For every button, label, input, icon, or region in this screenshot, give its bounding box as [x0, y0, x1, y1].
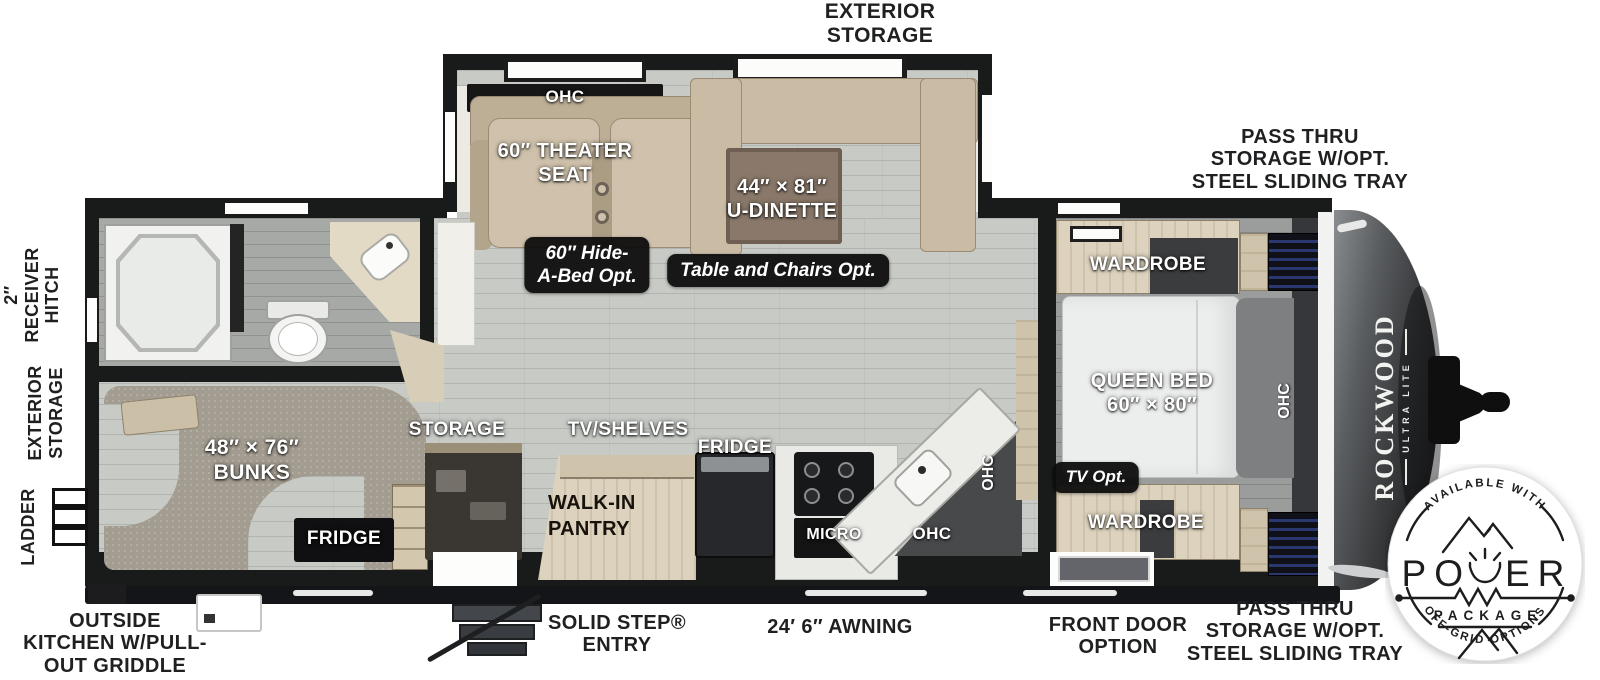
- badge-power-left: PO: [1402, 553, 1471, 594]
- bath-faucet: [386, 242, 393, 249]
- chassis-rail: [85, 586, 1340, 604]
- linen-column: [437, 222, 475, 346]
- wall-bath-divider: [85, 366, 434, 382]
- label-wardrobe-bottom: WARDROBE: [1088, 512, 1204, 534]
- kitchen-faucet: [918, 466, 926, 474]
- label-bunk-fridge: FRIDGE: [307, 528, 381, 550]
- rail-glint-1: [293, 590, 373, 596]
- label-ohc-bed: OHC: [1276, 378, 1294, 424]
- label-receiver-hitch-text: 2″ RECEIVER HITCH: [1, 247, 64, 342]
- ladder-rung-2: [55, 524, 85, 530]
- dinette-bench-right: [920, 78, 976, 252]
- wall-top-front: [978, 198, 1332, 218]
- burner-4: [838, 488, 854, 504]
- label-walk-in-pantry: WALK-IN PANTRY: [548, 490, 636, 542]
- burner-1: [804, 462, 820, 478]
- label-front-door-option: FRONT DOOR OPTION: [1049, 614, 1187, 659]
- front-cabinet-bottom: [1240, 508, 1268, 572]
- bath-partition: [230, 224, 244, 332]
- toilet-seat: [278, 322, 318, 356]
- label-ladder-text: LADDER: [18, 488, 39, 565]
- cupholder-2: [595, 210, 609, 224]
- rail-glint-3: [1023, 590, 1117, 596]
- label-ladder: LADDER: [17, 480, 39, 574]
- label-storage: STORAGE: [409, 419, 505, 441]
- label-hide-a-bed-option: 60″ Hide- A-Bed Opt.: [524, 237, 649, 293]
- label-tv-option: TV Opt.: [1053, 462, 1139, 493]
- storage-item-1: [436, 470, 466, 492]
- label-u-dinette: 44″ × 81″ U-DINETTE: [727, 176, 837, 223]
- brand-rule-right: [1405, 329, 1407, 355]
- label-awning: 24′ 6″ AWNING: [767, 616, 913, 638]
- window-slide-right: [982, 95, 992, 182]
- hitch-handle: [1480, 392, 1510, 412]
- label-pass-thru-bottom: PASS THRU STORAGE W/OPT. STEEL SLIDING T…: [1187, 598, 1403, 665]
- brand-subtitle-text: ULTRA LITE: [1401, 361, 1411, 453]
- label-ohc-sink: OHC: [980, 450, 998, 496]
- window-bathroom: [225, 203, 308, 214]
- roof-vent: [1070, 226, 1122, 242]
- label-theater-seat: 60″ THEATER SEAT: [498, 140, 633, 187]
- window-slide-left: [445, 112, 455, 182]
- front-cabinet-top: [1240, 233, 1268, 291]
- label-pass-thru-top: PASS THRU STORAGE W/OPT. STEEL SLIDING T…: [1192, 126, 1408, 193]
- power-package-badge: AVAILABLE WITH PO ER PACKAGE OFF-GRID OP…: [1385, 464, 1585, 664]
- label-outside-kitchen: OUTSIDE KITCHEN W/PULL- OUT GRIDDLE: [23, 610, 207, 677]
- ladder-rung-1: [55, 504, 85, 510]
- label-exterior-storage-left-text: EXTERIOR STORAGE: [25, 365, 67, 460]
- label-exterior-storage-left: EXTERIOR STORAGE: [24, 356, 68, 470]
- entry-door-opening: [433, 552, 517, 586]
- rv-floorplan: ROCKWOOD ULTRA LITE OHC 60″ THEATER SEAT…: [0, 0, 1600, 680]
- rail-glint-2: [805, 590, 927, 596]
- label-queen-bed: QUEEN BED 60″ × 80″: [1091, 370, 1214, 417]
- pantry-shelf-band: [560, 455, 694, 479]
- label-kitchen-fridge: FRIDGE: [698, 437, 772, 459]
- wall-bedroom: [1038, 198, 1056, 556]
- tall-cabinet: [1016, 320, 1038, 500]
- label-ohc-slide: OHC: [546, 87, 585, 107]
- label-receiver-hitch: 2″ RECEIVER HITCH: [1, 235, 63, 355]
- label-table-chairs-option: Table and Chairs Opt.: [667, 254, 889, 287]
- rear-stabilizer: [88, 584, 126, 604]
- label-exterior-storage-top: EXTERIOR STORAGE: [825, 0, 936, 47]
- label-bunks: 48″ × 76″ BUNKS: [205, 436, 299, 486]
- label-solid-step-entry: SOLID STEP® ENTRY: [548, 612, 686, 657]
- bunk-steps: [392, 484, 428, 570]
- brand-subtitle: ULTRA LITE: [1401, 329, 1411, 485]
- shower-pan-inner: [120, 238, 216, 348]
- burner-3: [804, 488, 820, 504]
- label-wardrobe-top: WARDROBE: [1090, 254, 1206, 276]
- badge-power-right: ER: [1505, 553, 1572, 594]
- label-ohc-kitchen: OHC: [913, 524, 952, 544]
- label-micro: MICRO: [806, 526, 861, 545]
- window-rear: [87, 298, 97, 342]
- entry-step-3: [467, 642, 527, 656]
- storage-item-2: [470, 502, 506, 520]
- resistor-dot-right: [1568, 595, 1573, 600]
- storage-counter-top: [425, 443, 522, 453]
- burner-2: [838, 462, 854, 478]
- resistor-dot-left: [1396, 595, 1401, 600]
- window-bedroom: [1058, 203, 1120, 214]
- front-door-mat: [1058, 556, 1150, 582]
- window-theater: [504, 58, 646, 82]
- front-shelf-bottom: [1268, 512, 1322, 576]
- rear-ladder-icon: [52, 488, 88, 546]
- label-tv-shelves: TV/SHELVES: [568, 419, 689, 441]
- front-shelf-top: [1268, 233, 1322, 291]
